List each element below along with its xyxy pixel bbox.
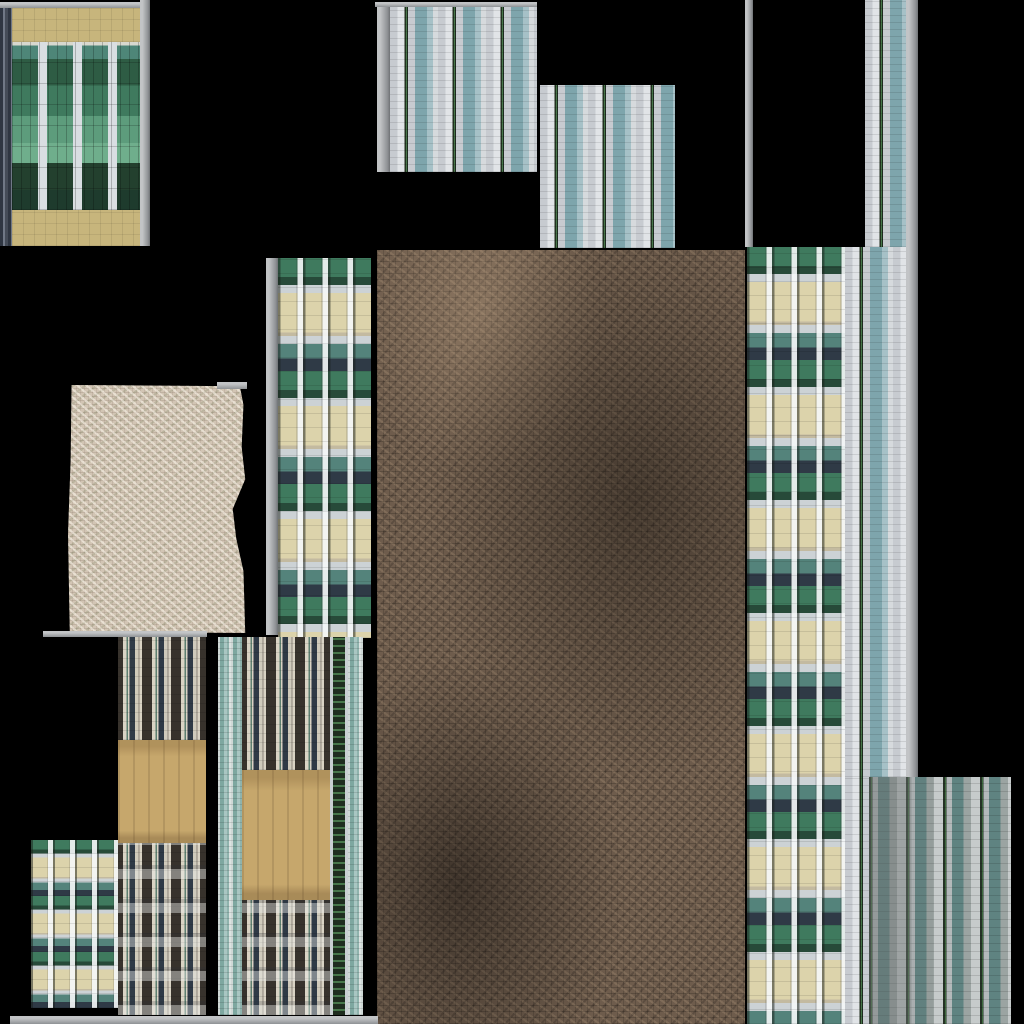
masonry-tower-1-top [118,637,206,740]
ground-mosaic [377,250,745,1024]
block-facade-bottom-right [869,777,1011,1024]
module-tower-mid [278,258,371,638]
top-facade-left-trim [377,7,390,172]
masonry-tower-2-window-col [330,637,348,1015]
texture-atlas [0,0,1024,1024]
top-facade-2 [540,85,675,248]
glass-tower-band-top [12,8,140,42]
module-tower-mid-trim [266,258,278,635]
right-strip-top [865,0,906,247]
right-strip-bottom [845,777,869,1024]
stone-top-trim [217,382,247,389]
masonry-tower-2-right-glass [348,637,363,1015]
masonry-tower-2-tan [242,770,330,900]
masonry-tower-1-base [118,843,206,1015]
masonry-tower-2-base [242,900,330,1015]
stone-slab [68,385,247,633]
top-facade [390,7,537,172]
glass-tower-left-edge [0,8,12,246]
glass-tower-side-trim [140,0,150,246]
glass-tower-band-bottom [12,210,140,246]
glass-tower-glass [12,42,140,210]
masonry-tower-2-top [242,637,330,770]
bottom-edge-trim [10,1016,378,1024]
masonry-tower-2-left-glass [218,637,242,1015]
module-tower-right [747,247,845,1024]
right-strip-gray-band [906,0,918,777]
module-tower-small [31,840,118,1008]
right-trim-line [745,0,753,247]
right-strip-mid [845,247,906,777]
masonry-tower-1-tan [118,740,206,843]
